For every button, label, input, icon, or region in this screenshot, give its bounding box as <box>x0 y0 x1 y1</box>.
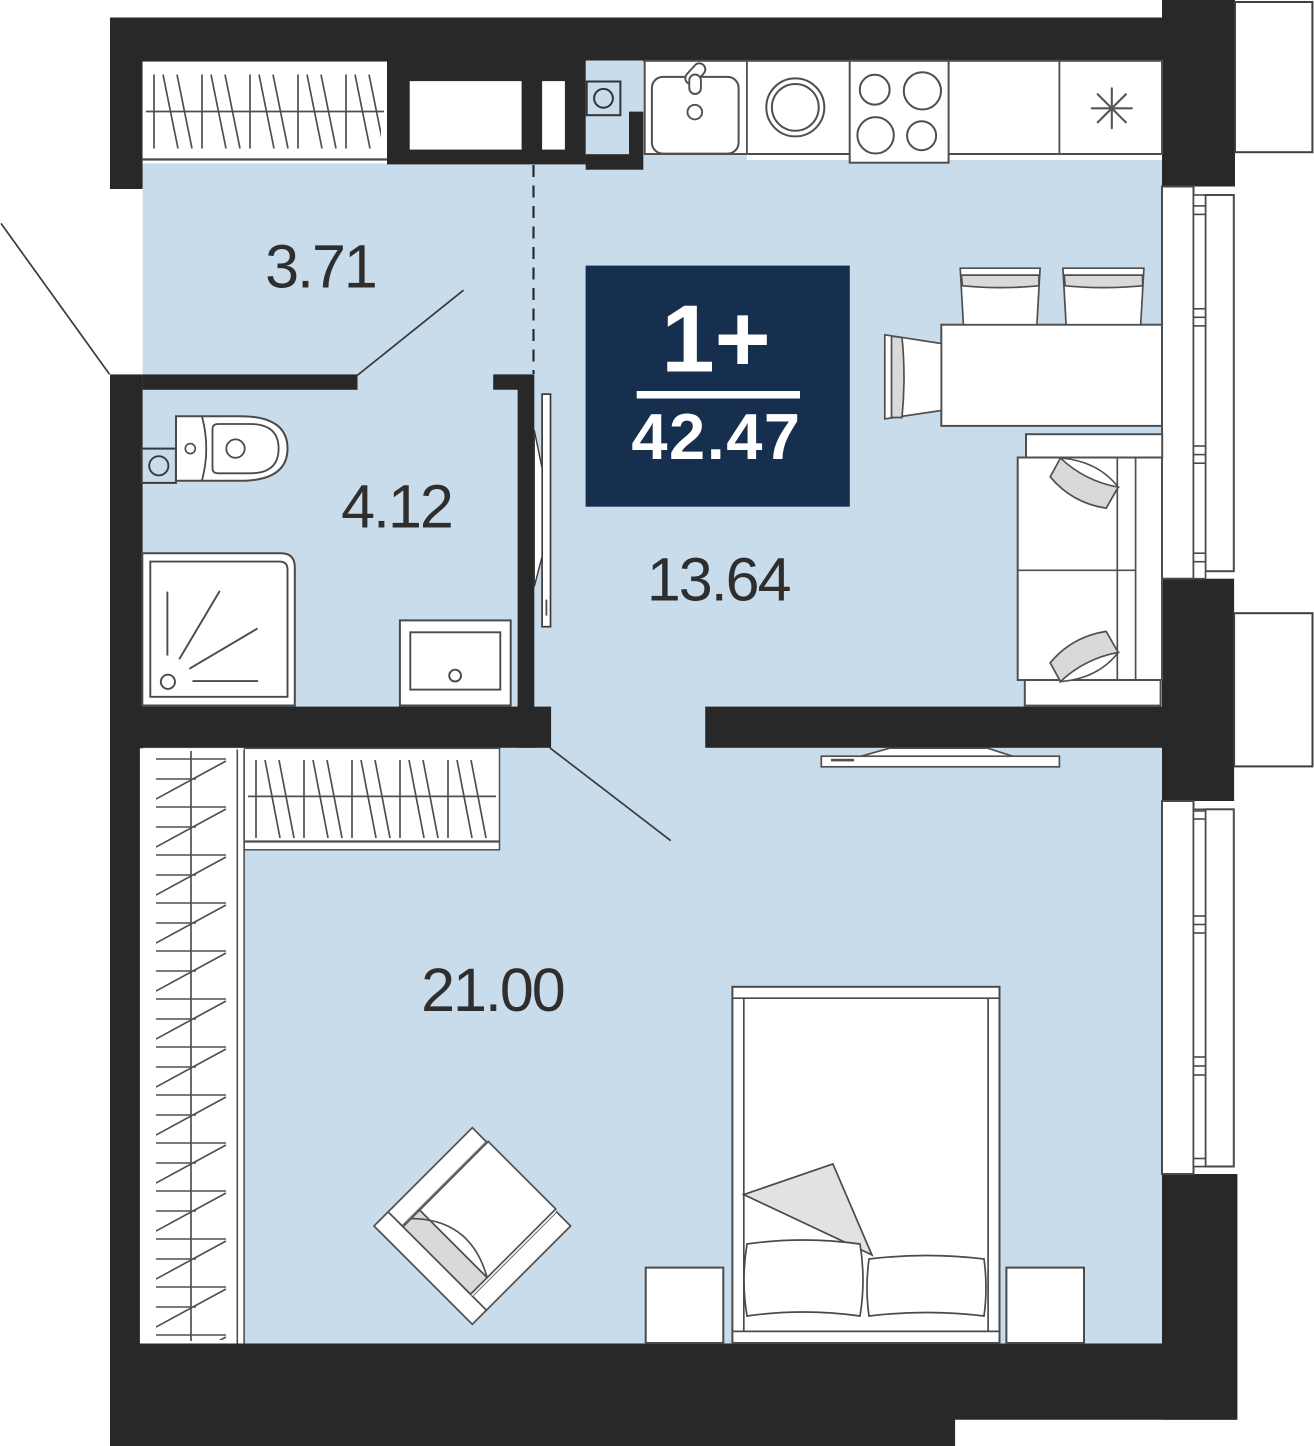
svg-text:42.47: 42.47 <box>631 400 801 473</box>
svg-text:13.64: 13.64 <box>647 546 791 614</box>
svg-text:1+: 1+ <box>661 286 770 393</box>
svg-text:4.12: 4.12 <box>341 473 452 541</box>
svg-text:21.00: 21.00 <box>421 956 564 1024</box>
svg-text:3.71: 3.71 <box>265 233 376 301</box>
